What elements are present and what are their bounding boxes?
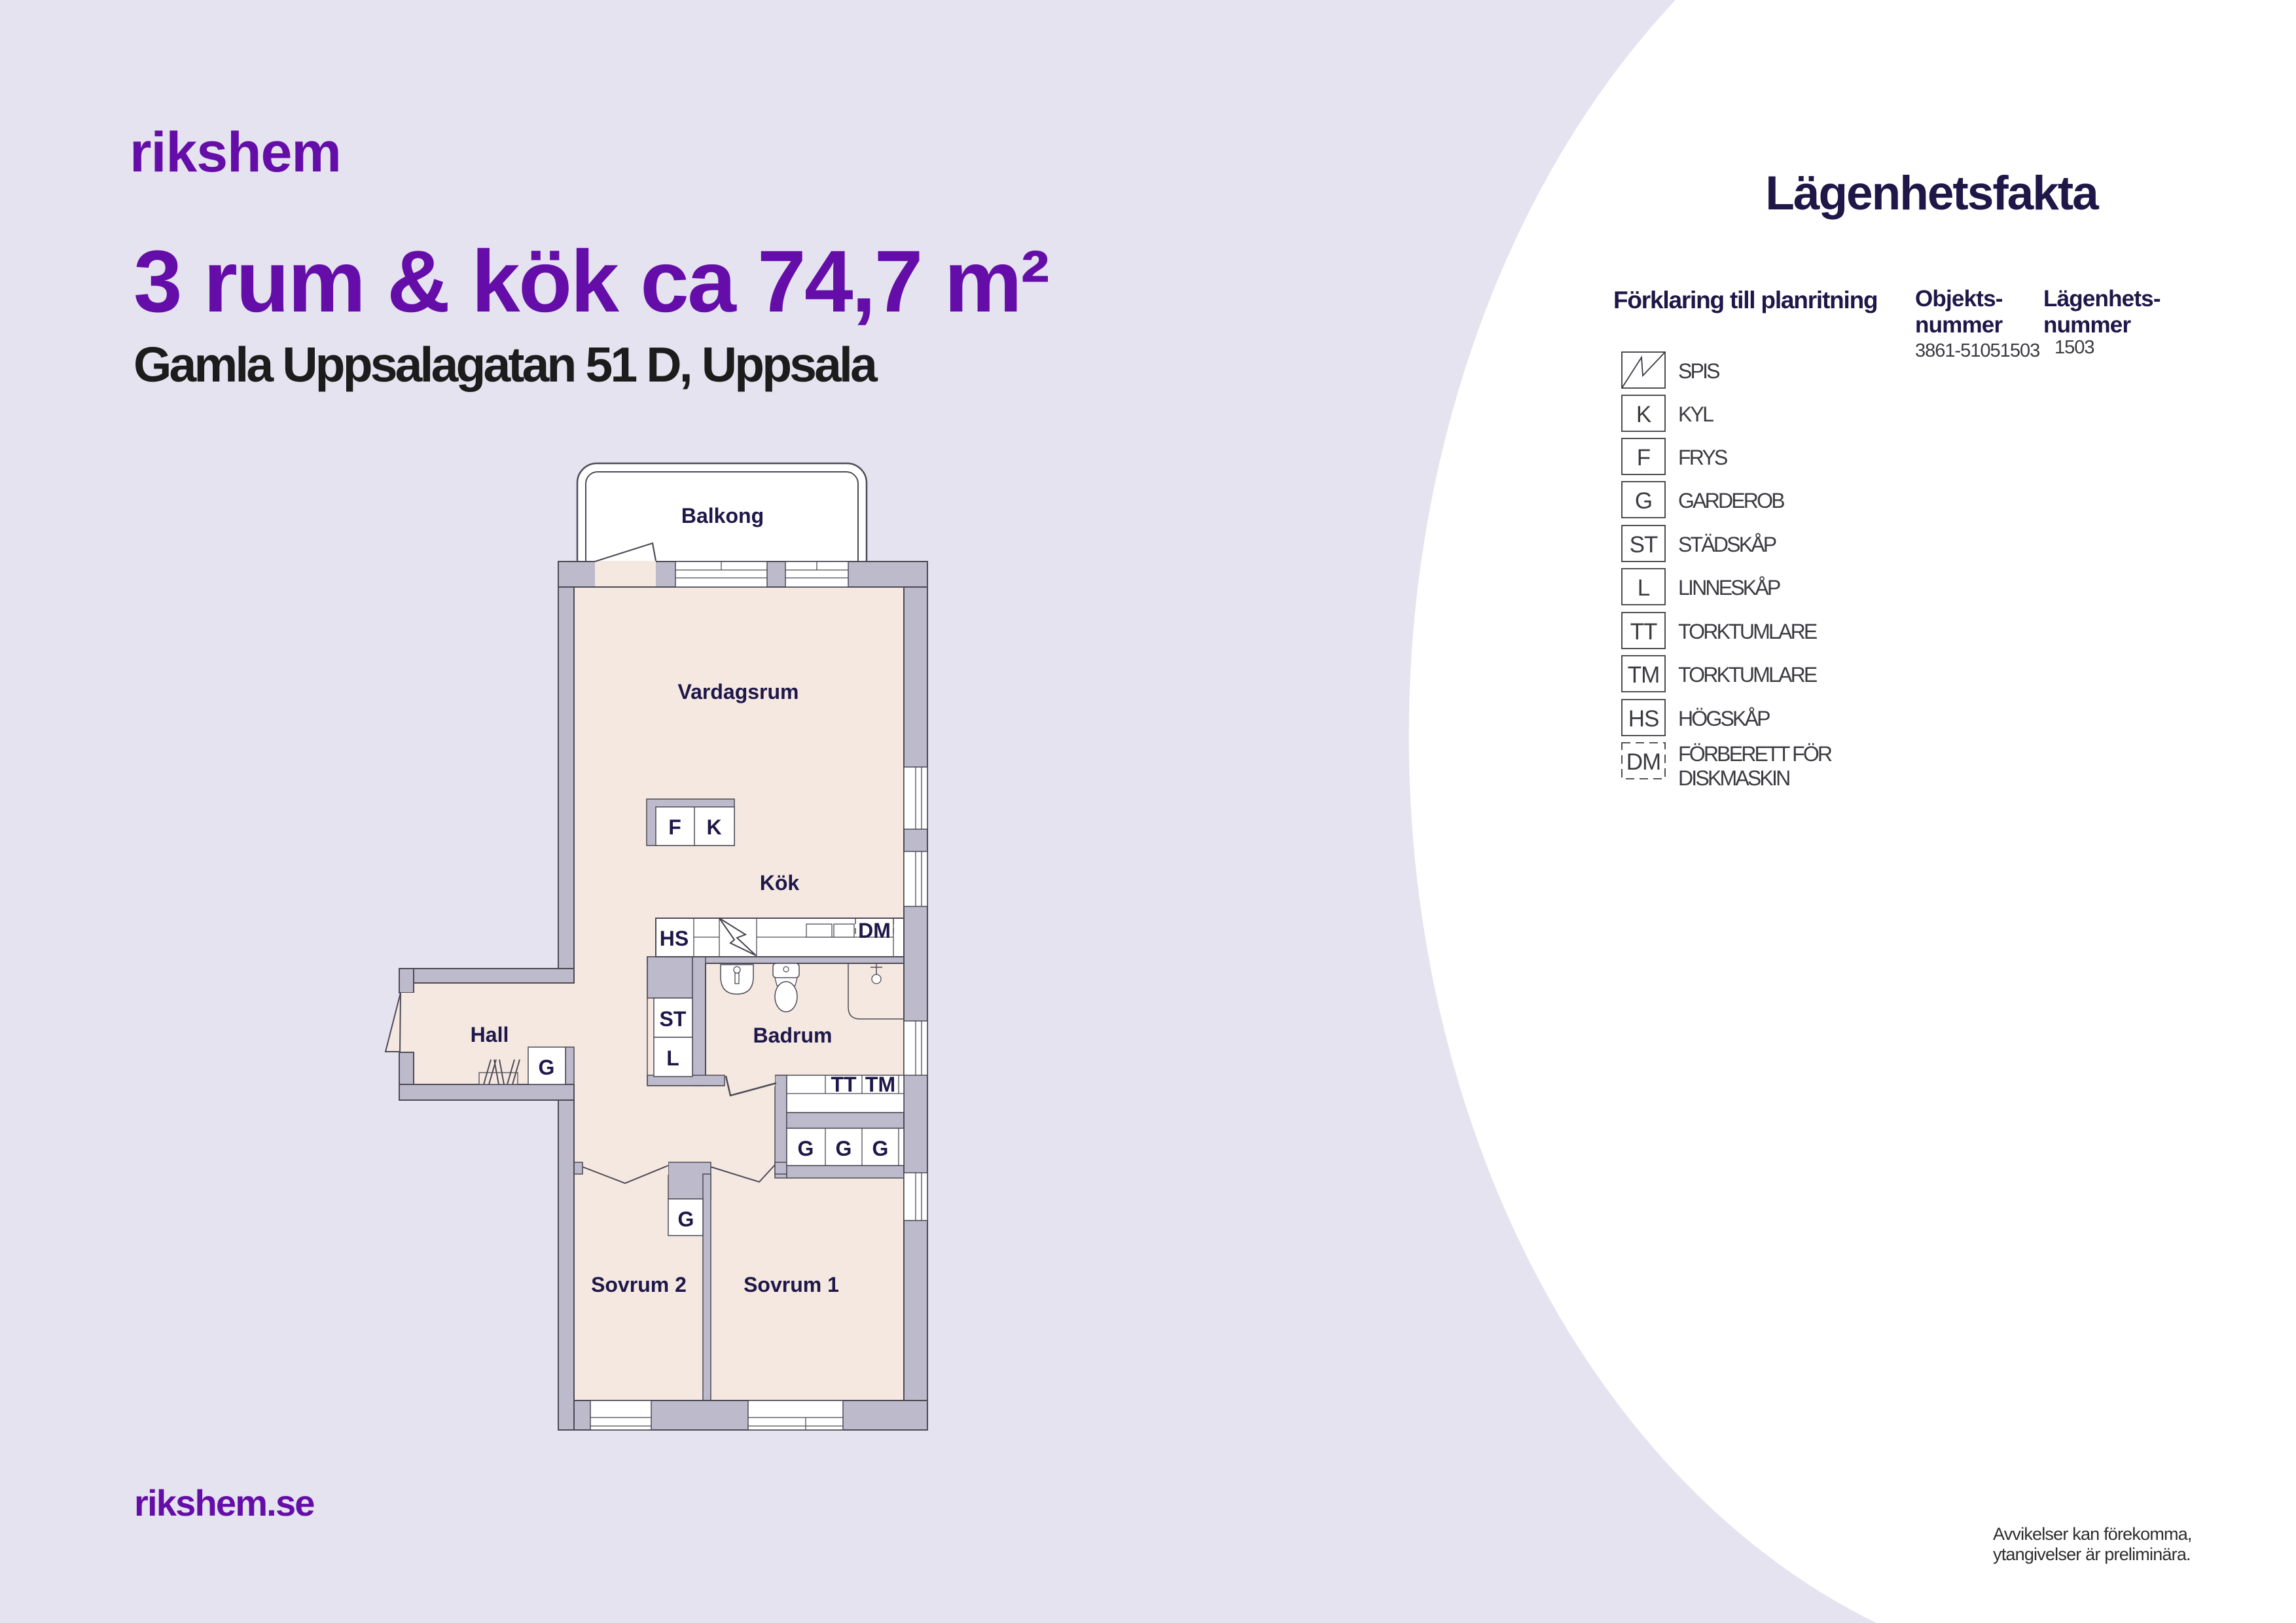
svg-text:Balkong: Balkong [681, 504, 764, 527]
svg-text:Badrum: Badrum [753, 1024, 833, 1047]
svg-text:G: G [678, 1207, 694, 1231]
svg-text:DM: DM [1626, 749, 1660, 775]
svg-text:Vardagsrum: Vardagsrum [678, 680, 799, 704]
svg-text:HÖGSKÅP: HÖGSKÅP [1678, 707, 1770, 730]
svg-text:TORKTUMLARE: TORKTUMLARE [1678, 663, 1817, 687]
svg-text:TM: TM [1628, 662, 1660, 688]
svg-text:nummer: nummer [1915, 312, 2003, 338]
svg-text:L: L [666, 1046, 679, 1070]
svg-text:Objekts-: Objekts- [1915, 286, 2003, 312]
svg-text:TM: TM [865, 1073, 895, 1096]
svg-text:TORKTUMLARE: TORKTUMLARE [1678, 620, 1817, 643]
svg-text:DISKMASKIN: DISKMASKIN [1678, 766, 1789, 790]
svg-text:K: K [1636, 402, 1651, 427]
svg-text:G: G [539, 1056, 555, 1079]
svg-text:Förklaring till planritning: Förklaring till planritning [1613, 287, 1877, 313]
svg-text:G: G [872, 1137, 889, 1160]
svg-text:GARDEROB: GARDEROB [1678, 489, 1784, 512]
svg-text:SPIS: SPIS [1678, 359, 1719, 383]
svg-text:Gamla Uppsalagatan 51 D, Uppsa: Gamla Uppsalagatan 51 D, Uppsala [134, 337, 878, 392]
svg-text:rikshem.se: rikshem.se [134, 1482, 314, 1524]
svg-text:KYL: KYL [1678, 402, 1713, 426]
svg-text:ytangivelser är preliminära.: ytangivelser är preliminära. [1993, 1544, 2191, 1564]
svg-text:Lägenhetsfakta: Lägenhetsfakta [1765, 167, 2100, 220]
svg-text:Lägenhets-: Lägenhets- [2043, 286, 2161, 312]
svg-text:ST: ST [660, 1007, 687, 1031]
svg-text:G: G [836, 1137, 852, 1160]
svg-text:HS: HS [660, 927, 689, 950]
svg-text:Hall: Hall [471, 1023, 509, 1046]
svg-text:G: G [798, 1137, 814, 1160]
svg-text:nummer: nummer [2043, 312, 2131, 338]
svg-text:DM: DM [858, 919, 891, 942]
svg-text:K: K [706, 815, 721, 839]
svg-text:Sovrum 2: Sovrum 2 [591, 1273, 687, 1296]
svg-text:FÖRBERETT FÖR: FÖRBERETT FÖR [1678, 742, 1832, 766]
svg-text:L: L [1638, 575, 1650, 601]
svg-text:Sovrum 1: Sovrum 1 [744, 1273, 839, 1296]
svg-text:FRYS: FRYS [1678, 446, 1727, 469]
svg-text:Kök: Kök [760, 871, 800, 895]
svg-text:G: G [1635, 488, 1652, 514]
svg-text:TT: TT [1630, 619, 1657, 645]
svg-text:F: F [668, 815, 681, 839]
svg-text:LINNESKÅP: LINNESKÅP [1678, 576, 1780, 599]
svg-text:3861-51051503: 3861-51051503 [1915, 340, 2039, 361]
svg-text:rikshem: rikshem [130, 121, 341, 184]
svg-text:HS: HS [1628, 706, 1659, 732]
svg-text:Avvikelser kan förekomma,: Avvikelser kan förekomma, [1993, 1524, 2192, 1544]
svg-text:ST: ST [1630, 532, 1658, 558]
svg-text:3 rum & kök ca 74,7 m²: 3 rum & kök ca 74,7 m² [134, 233, 1048, 330]
svg-text:1503: 1503 [2054, 337, 2094, 358]
svg-text:TT: TT [831, 1073, 857, 1096]
svg-text:STÄDSKÅP: STÄDSKÅP [1678, 533, 1776, 556]
svg-text:F: F [1637, 445, 1650, 471]
